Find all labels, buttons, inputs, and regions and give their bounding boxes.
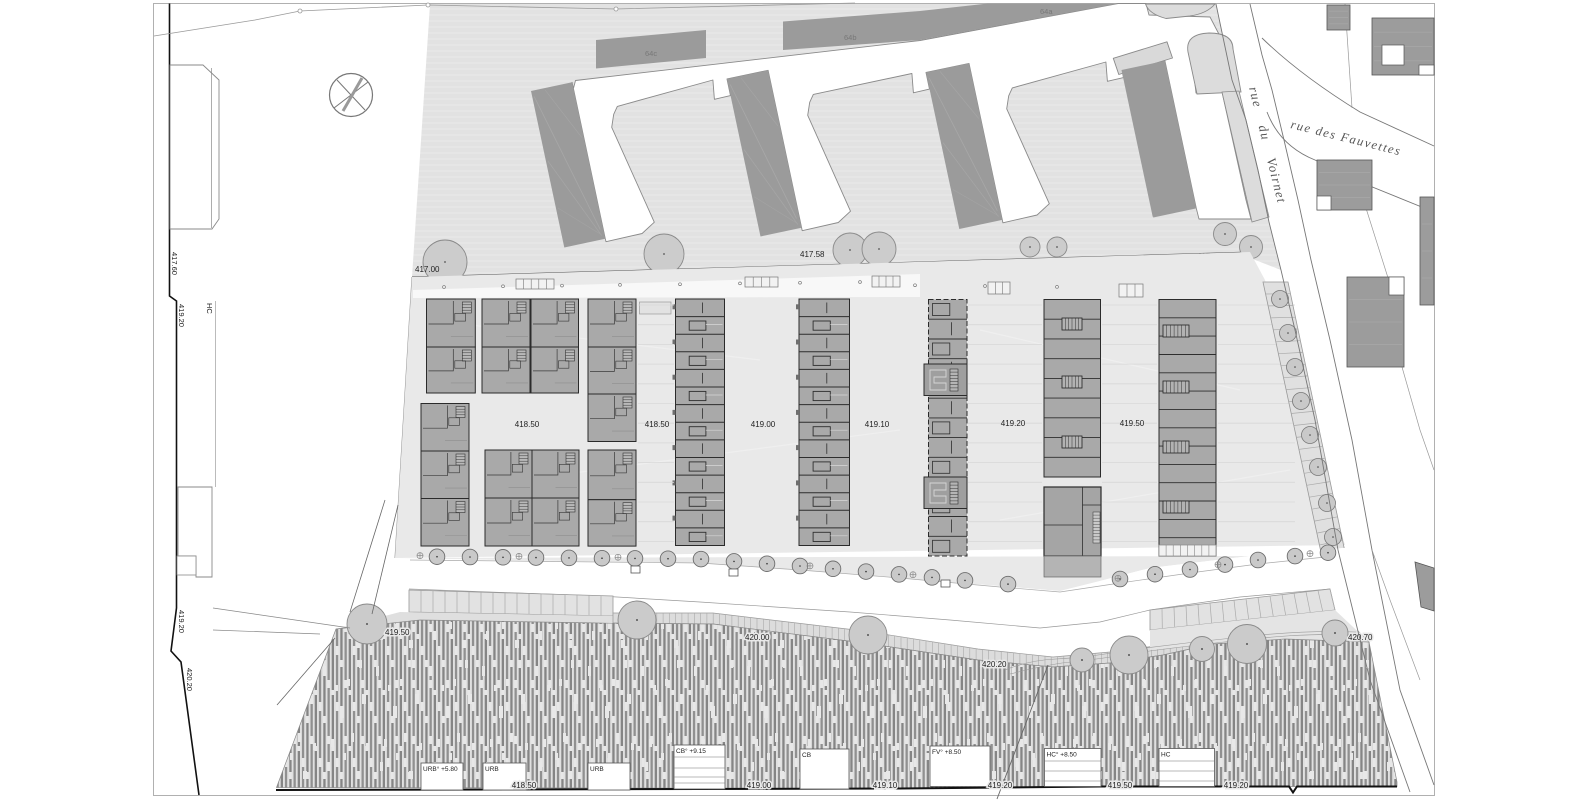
svg-text:URB: URB bbox=[485, 766, 499, 773]
svg-text:420.20: 420.20 bbox=[185, 668, 194, 691]
svg-text:417.00: 417.00 bbox=[415, 265, 440, 274]
svg-text:419.00: 419.00 bbox=[751, 420, 776, 429]
svg-text:HC: HC bbox=[1161, 752, 1171, 759]
svg-text:FV° +8.50: FV° +8.50 bbox=[932, 748, 962, 756]
svg-text:419.00: 419.00 bbox=[747, 781, 772, 790]
svg-text:419.10: 419.10 bbox=[865, 420, 890, 429]
svg-text:417.60: 417.60 bbox=[170, 252, 179, 275]
svg-text:64b: 64b bbox=[844, 33, 857, 42]
svg-text:417.58: 417.58 bbox=[800, 250, 825, 259]
svg-text:419.50: 419.50 bbox=[385, 628, 410, 637]
svg-text:CB° +9.15: CB° +9.15 bbox=[676, 747, 706, 755]
svg-text:420.20: 420.20 bbox=[982, 660, 1007, 669]
svg-text:HC° +8.50: HC° +8.50 bbox=[1047, 751, 1078, 759]
svg-text:419.50: 419.50 bbox=[1120, 419, 1145, 428]
svg-text:418.50: 418.50 bbox=[645, 420, 670, 429]
svg-text:HC: HC bbox=[205, 303, 214, 314]
svg-text:CB: CB bbox=[802, 752, 811, 759]
svg-text:420.00: 420.00 bbox=[745, 633, 770, 642]
svg-text:418.50: 418.50 bbox=[515, 420, 540, 429]
svg-text:URB° +5.80: URB° +5.80 bbox=[423, 765, 458, 773]
svg-text:419.10: 419.10 bbox=[873, 781, 898, 790]
svg-text:419.20: 419.20 bbox=[177, 304, 186, 327]
svg-text:419.20: 419.20 bbox=[1001, 419, 1026, 428]
svg-text:64a: 64a bbox=[1040, 7, 1053, 16]
svg-text:419.20: 419.20 bbox=[1224, 781, 1249, 790]
svg-text:419.20: 419.20 bbox=[988, 781, 1013, 790]
svg-text:URB: URB bbox=[590, 766, 604, 773]
svg-text:418.50: 418.50 bbox=[512, 781, 537, 790]
svg-text:64c: 64c bbox=[645, 49, 657, 58]
svg-text:419.20: 419.20 bbox=[177, 610, 186, 633]
svg-text:419.50: 419.50 bbox=[1108, 781, 1133, 790]
